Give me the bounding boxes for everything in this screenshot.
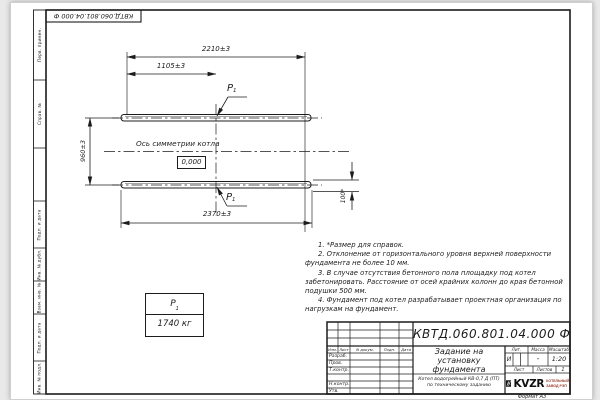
lit-header: Лит. [505, 347, 528, 352]
row-prov: Пров. [329, 361, 342, 366]
strip-cell-podp-data-1: Подп. и дата [34, 201, 46, 248]
row-nkontr: Н.контр. [329, 382, 350, 387]
logo-caption-line-1: КОТЕЛЬНЫЙ [546, 379, 569, 383]
title-block-product: Котел водогрейный КВ-0,7 Д (ПТ) по техни… [414, 377, 504, 389]
logo-caption: КОТЕЛЬНЫЙ ЗАВОД РЭП [546, 379, 569, 387]
load-label-top: P1 [227, 83, 237, 94]
strip-cell-inv-dubl: Инв. № дубл. [34, 248, 46, 281]
load-subscript: 1 [176, 306, 179, 312]
logo-text: KVZR [513, 378, 544, 390]
strip-cell-sprav-no: Справ. № [34, 80, 46, 148]
sheets-label: Листов [533, 367, 556, 372]
dim-1105: 1105±3 [141, 62, 201, 70]
load-label-bottom: P1 [226, 192, 236, 203]
col-doc: N докум. [350, 347, 380, 352]
mass-value: - [528, 353, 548, 366]
mass-table-load-cell: P1 [146, 294, 203, 315]
note-1: 1. *Размер для справок. [305, 241, 565, 250]
col-podp: Подп. [380, 347, 399, 352]
title-block-doc-title: Задание на установку фундамента [413, 348, 505, 374]
logo-caption-line-2: ЗАВОД РЭП [546, 384, 569, 388]
strip-cell-perv-primen: Перв. примен. [34, 10, 46, 80]
notes-block: 1. *Размер для справок. 2. Отклонение от… [305, 241, 565, 314]
note-2: 2. Отклонение от горизонтального уровня … [305, 250, 565, 268]
title-block-designation: КВТД.060.801.04.000 Ф [413, 323, 570, 346]
col-izm: Изм. [327, 347, 338, 352]
dim-2370: 2370±3 [182, 210, 252, 218]
dim-2210: 2210±3 [186, 45, 246, 53]
scale-header: Масштаб [548, 347, 570, 352]
row-utv: Утв. [329, 389, 339, 394]
dim-960: 960±3 [79, 131, 89, 171]
strip-cell-vzam-inv: Взам. инв. № [34, 281, 46, 314]
axis-of-symmetry-label: Ось симметрии котла [136, 139, 220, 148]
lit-value: И [505, 353, 513, 366]
level-mark: 0,000 [177, 156, 206, 169]
company-logo: KVZR КОТЕЛЬНЫЙ ЗАВОД РЭП [506, 374, 569, 393]
note-3: 3. В случае отсутствия бетонного пола пл… [305, 269, 565, 297]
row-razrab: Разраб. [329, 354, 347, 359]
col-data: Дата [399, 347, 413, 352]
kvzr-logo-icon [506, 377, 511, 390]
row-tkontr: Т.контр. [329, 368, 349, 373]
load-subscript: 1 [232, 197, 236, 203]
drawing-page: КВТД.060.801.04.000 Ф Перв. примен. Спра… [0, 0, 600, 400]
strip-cell-podp-data-2: Подп. и дата [34, 314, 46, 361]
dim-100: 100* [340, 181, 350, 211]
product-line-2: по техническому заданию [414, 383, 504, 389]
strip-cell-inv-podl: Инв. № подл. [34, 361, 46, 394]
format-note: Формат А3 [497, 394, 567, 400]
mass-table-value-cell: 1740 кг [146, 315, 203, 334]
mass-header: Масса [528, 347, 548, 352]
sheets-value: 1 [556, 367, 570, 373]
load-subscript: 1 [233, 88, 237, 94]
col-list: Лист [338, 347, 350, 352]
sheet-label: Лист [505, 367, 533, 372]
designation-rotated: КВТД.060.801.04.000 Ф [46, 10, 141, 22]
load-mass-table: P1 1740 кг [145, 293, 204, 337]
scale-value: 1:20 [548, 353, 570, 366]
note-4: 4. Фундамент под котел разрабатывает про… [305, 296, 565, 314]
